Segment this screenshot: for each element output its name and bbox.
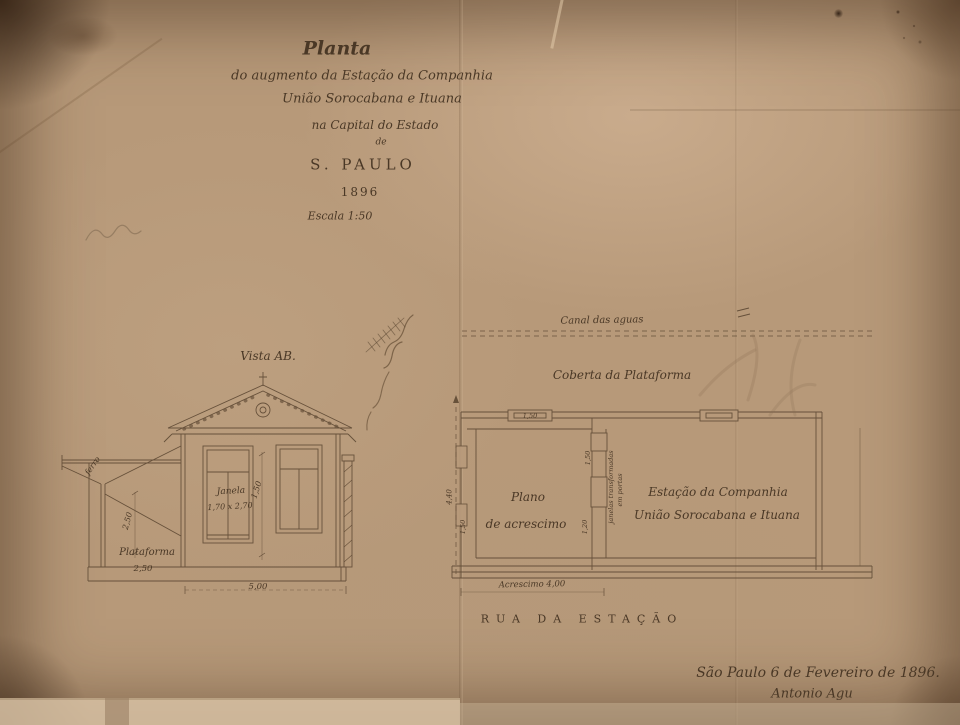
- dim-top-opening: 1,50: [523, 413, 537, 420]
- elevation-view-label: Vista AB.: [240, 350, 296, 362]
- signature-line2: Antonio Agu: [771, 688, 852, 701]
- title-planta: Planta: [303, 40, 372, 59]
- scanned-blueprint: Planta do augmento da Estação da Companh…: [0, 0, 960, 725]
- pencil-scribbles: [86, 225, 815, 430]
- station-label-2: União Sorocabana e Ituana: [634, 509, 800, 521]
- platform-label: Plataforma: [119, 548, 175, 558]
- dim-left-opening: 1,50: [460, 520, 467, 534]
- station-label-1: Estação da Companhia: [648, 486, 788, 498]
- title-sao-paulo: S. PAULO: [310, 158, 416, 173]
- elevation-drawing: [62, 372, 356, 594]
- title-de: de: [375, 139, 386, 148]
- plan-drawing: [452, 308, 873, 596]
- wall-note-line2: em portas: [617, 473, 624, 506]
- new-room-label-2: de acrescimo: [486, 518, 567, 530]
- dim-platform-height: 2,50: [134, 565, 153, 574]
- wall-note-line1: janelas transformadas: [608, 450, 615, 523]
- title-line3: União Sorocabana e Ituana: [282, 93, 462, 106]
- canal-label: Canal das aguas: [560, 315, 643, 326]
- dim-door-lower: 1,20: [582, 520, 589, 534]
- window-label: Janela: [217, 487, 246, 497]
- dim-base-width: 5,00: [249, 583, 268, 592]
- title-line4: na Capital do Estado: [312, 119, 439, 131]
- street-label: RUA DA ESTAÇÃO: [481, 614, 684, 625]
- title-line2: do augmento da Estação da Companhia: [231, 70, 493, 83]
- dim-door-upper: 1,50: [585, 451, 592, 465]
- dim-extension: Acrescimo 4,00: [499, 580, 566, 590]
- title-year: 1896: [341, 186, 380, 198]
- cover-label: Coberta da Plataforma: [553, 369, 691, 381]
- signature-line1: São Paulo 6 de Fevereiro de 1896.: [696, 666, 940, 680]
- dim-depth: 4,40: [447, 489, 454, 505]
- title-scale: Escala 1:50: [308, 211, 373, 222]
- new-room-label-1: Plano: [511, 491, 545, 503]
